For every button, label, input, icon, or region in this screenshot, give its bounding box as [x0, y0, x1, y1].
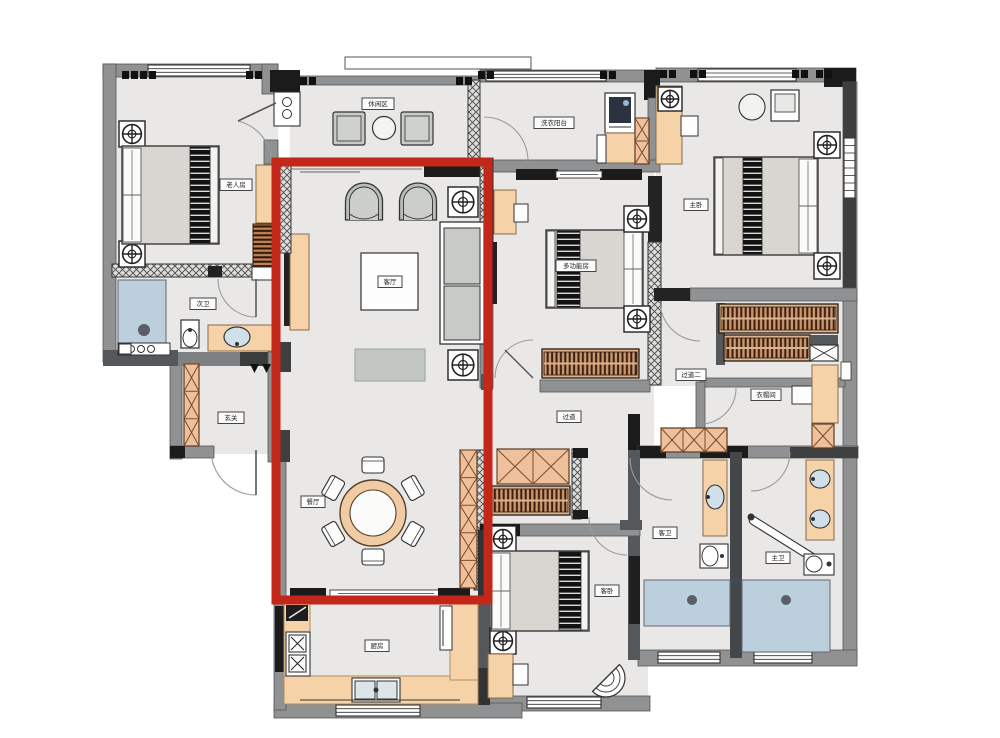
svg-text:厨房: 厨房	[371, 641, 384, 650]
svg-text:老人房: 老人房	[226, 180, 246, 189]
svg-text:洗衣阳台: 洗衣阳台	[541, 118, 567, 127]
svg-text:过道二: 过道二	[681, 370, 701, 379]
svg-text:多功能房: 多功能房	[563, 261, 589, 270]
svg-text:客卧: 客卧	[601, 586, 615, 595]
svg-text:休闲区: 休闲区	[368, 99, 388, 108]
svg-text:玄关: 玄关	[225, 413, 239, 422]
svg-text:客卫: 客卫	[659, 528, 673, 537]
svg-text:次卫: 次卫	[197, 299, 211, 308]
svg-text:过道: 过道	[563, 412, 577, 421]
svg-text:主卫: 主卫	[772, 553, 786, 562]
svg-text:餐厅: 餐厅	[307, 497, 321, 506]
svg-text:衣帽间: 衣帽间	[756, 390, 776, 399]
svg-text:主卧: 主卧	[690, 200, 704, 209]
svg-text:客厅: 客厅	[384, 277, 398, 286]
